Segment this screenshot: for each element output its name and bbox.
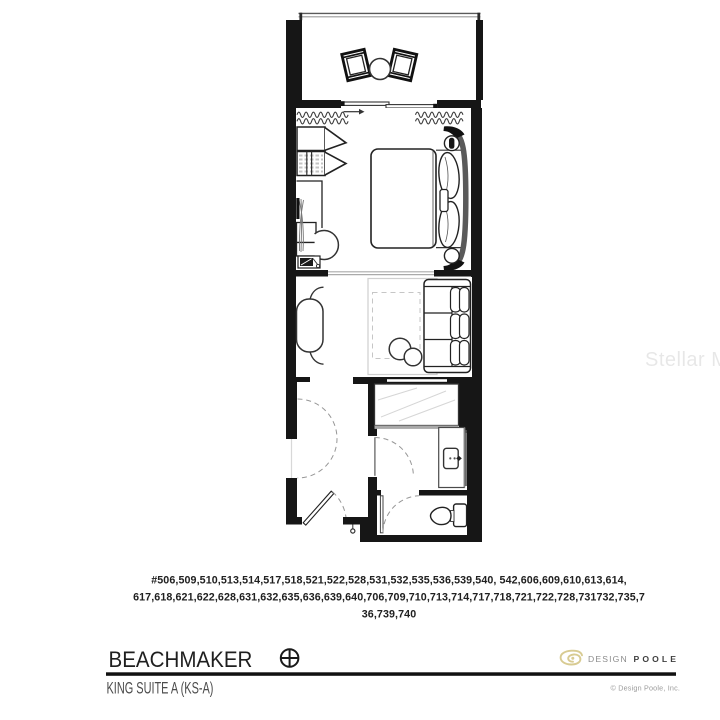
- svg-text:Stellar MLS: Stellar MLS: [645, 349, 720, 371]
- svg-text:POOLE: POOLE: [634, 654, 680, 664]
- svg-text:36,739,740: 36,739,740: [362, 608, 417, 620]
- svg-text:© Design Poole, Inc.: © Design Poole, Inc.: [611, 683, 681, 692]
- svg-text:#506,509,510,513,514,517,518,5: #506,509,510,513,514,517,518,521,522,528…: [151, 574, 627, 586]
- svg-text:KING SUITE A (KS-A): KING SUITE A (KS-A): [107, 679, 214, 698]
- svg-text:617,618,621,622,628,631,632,63: 617,618,621,622,628,631,632,635,636,639,…: [133, 592, 645, 604]
- svg-text:DESIGN: DESIGN: [588, 654, 628, 664]
- svg-text:BEACHMAKER: BEACHMAKER: [109, 646, 253, 672]
